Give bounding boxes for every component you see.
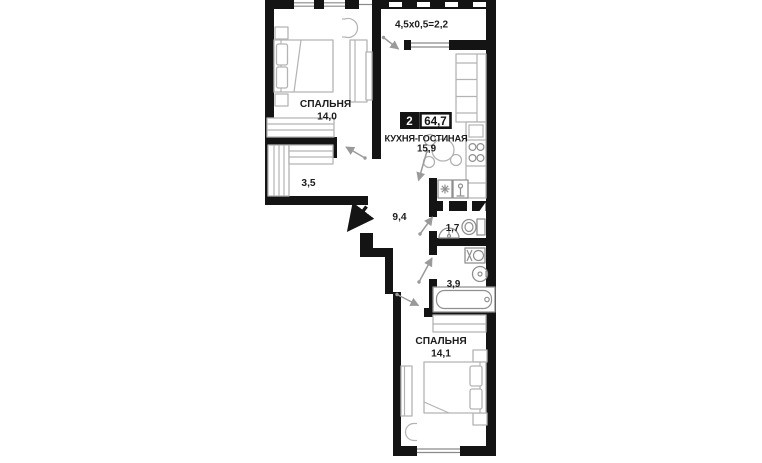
plan-badge: 2 64,7 <box>400 112 451 129</box>
wardrobe-room-area: 3,5 <box>301 178 315 189</box>
bedroom2-furniture <box>401 315 487 441</box>
wall-bedroom2-bottom-2 <box>460 446 496 456</box>
bed-icon <box>274 40 333 92</box>
wall-wc-left-top <box>429 212 437 217</box>
armchair-icon <box>342 19 358 38</box>
kitchen-living-name: КУХНЯ-ГОСТИНАЯ <box>385 134 468 144</box>
washing-machine-icon <box>465 248 485 263</box>
kitchen-living-area: 15,9 <box>417 144 437 155</box>
dresser-icon <box>433 315 486 332</box>
nightstand-icon <box>473 413 487 425</box>
nightstand-icon <box>473 350 487 362</box>
armchair-icon <box>406 424 418 441</box>
wc-area: 1,7 <box>446 223 460 234</box>
bedroom-bottom-name: СПАЛЬНЯ <box>415 336 466 347</box>
bedroom-top-area: 14,0 <box>317 112 337 123</box>
wall-hall-step-3 <box>385 257 393 294</box>
wall-wardrobe-bottom <box>265 196 368 205</box>
wall-top-1 <box>265 0 294 9</box>
round-sink-icon <box>473 267 488 282</box>
hallway-area: 9,4 <box>392 212 406 223</box>
wall-top-pier <box>314 0 324 9</box>
wall-hall-step-2 <box>373 248 393 257</box>
window-kitchen <box>411 43 449 47</box>
wall-bedroom2-bottom-1 <box>393 446 417 456</box>
bathroom-area: 3,9 <box>447 279 461 290</box>
badge-total-area: 64,7 <box>424 116 446 128</box>
bed-icon <box>424 362 486 413</box>
wall-right <box>486 0 496 456</box>
wall-bath-left-top <box>429 246 437 255</box>
sofa-icon <box>456 54 486 122</box>
wall-hall-step-1 <box>360 233 373 257</box>
faucet-icon <box>453 180 468 198</box>
shelving-icon <box>289 145 333 164</box>
bedroom-top-name: СПАЛЬНЯ <box>300 99 351 110</box>
wall-wc-bath-divider <box>429 238 496 246</box>
bathroom-fixtures <box>433 248 495 312</box>
nightstand-icon <box>275 94 288 106</box>
entrance-arrow <box>350 207 367 229</box>
wall-bedroom1-kitchen <box>372 0 381 159</box>
bathtub-icon <box>433 287 495 312</box>
window-bedroom2 <box>417 449 460 453</box>
wardrobe-icon <box>350 40 367 102</box>
wall-bedroom2-left <box>393 292 401 456</box>
wall-top-2 <box>345 0 359 9</box>
floorplan-drawing: 2 64,7 4,5x0,5=2,2 СПАЛЬНЯ 14,0 3,5 КУХН… <box>0 0 762 463</box>
tv-icon <box>366 52 372 100</box>
door-arrow-balcony <box>382 36 399 49</box>
wall-wc-left-bottom <box>429 231 437 238</box>
balcony-dimension-label: 4,5x0,5=2,2 <box>395 20 449 31</box>
toilet-icon <box>462 219 485 235</box>
floorplan-page: 2 64,7 4,5x0,5=2,2 СПАЛЬНЯ 14,0 3,5 КУХН… <box>0 0 762 463</box>
window-bedroom-top <box>294 3 372 6</box>
shaft-hatch <box>431 201 486 211</box>
nightstand-icon <box>275 27 288 39</box>
kitchen-sink-icon <box>438 180 452 198</box>
wall-balcony-pier <box>404 40 411 50</box>
bedroom-bottom-area: 14,1 <box>431 349 451 360</box>
badge-rooms-count: 2 <box>406 116 412 128</box>
shelving-icon <box>268 145 289 196</box>
wardrobe-icon <box>401 366 412 416</box>
wall-balcony-divider <box>449 40 486 50</box>
door-arrow-wardrobe-room <box>346 147 367 160</box>
